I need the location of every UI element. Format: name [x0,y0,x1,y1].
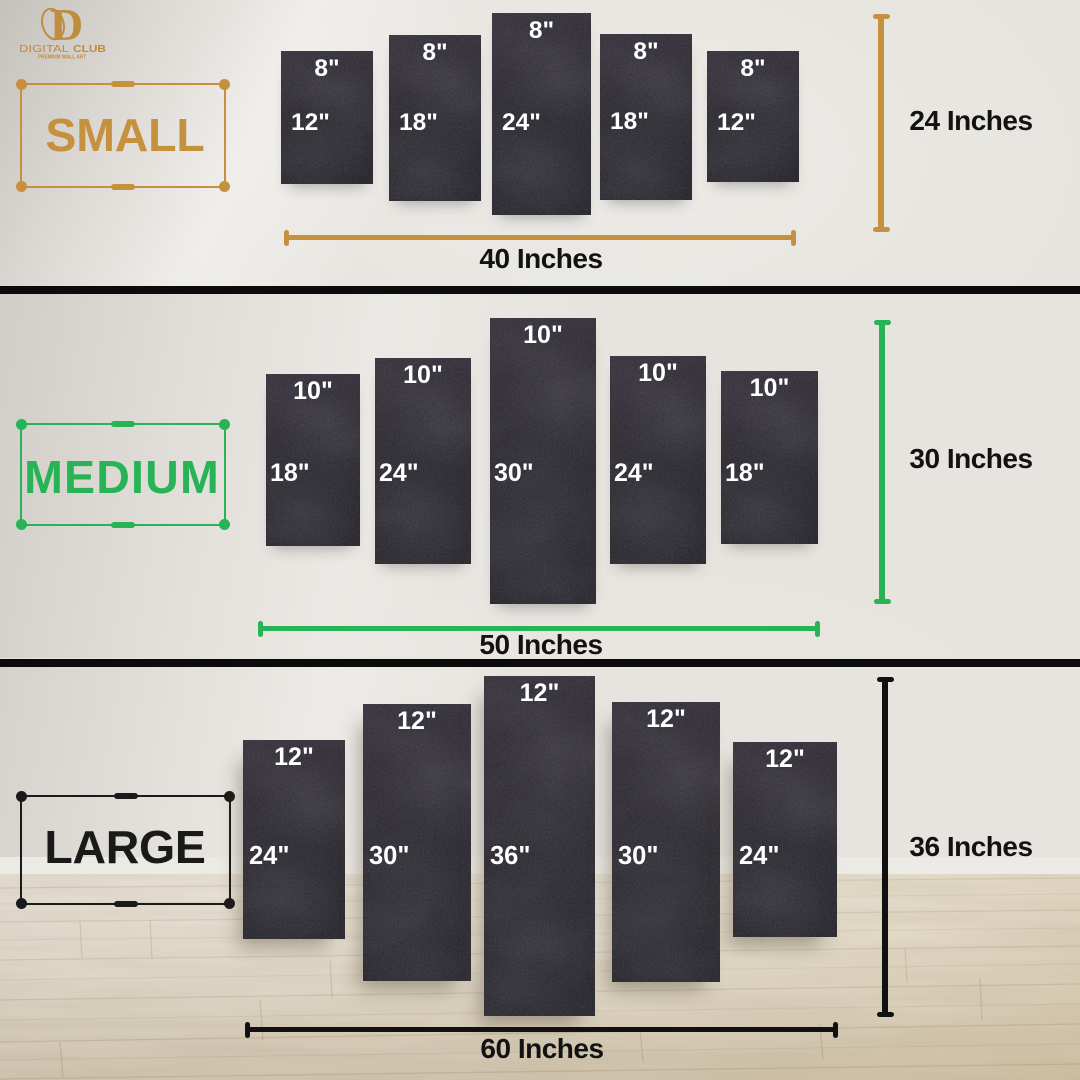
svg-text:CLUB: CLUB [73,43,106,55]
svg-text:PREMIUM WALL ART: PREMIUM WALL ART [38,55,86,61]
svg-text:DIGITAL: DIGITAL [19,43,69,55]
